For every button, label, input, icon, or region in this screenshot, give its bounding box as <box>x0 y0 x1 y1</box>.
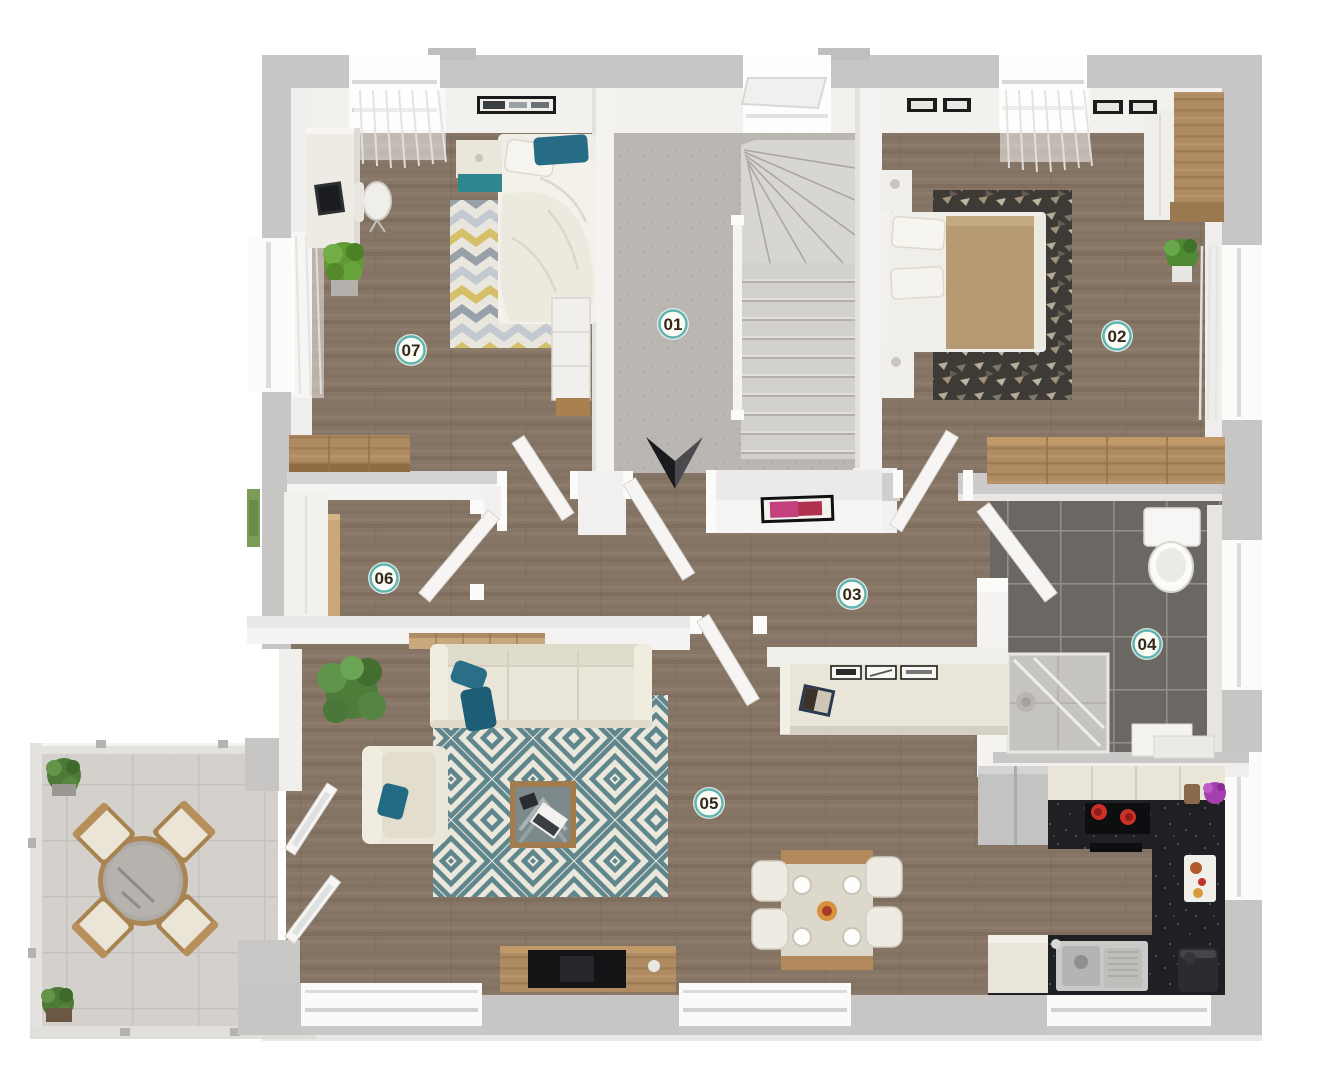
svg-text:04: 04 <box>1138 635 1157 654</box>
svg-text:05: 05 <box>700 794 719 813</box>
svg-text:02: 02 <box>1108 327 1127 346</box>
svg-text:07: 07 <box>402 341 421 360</box>
svg-text:01: 01 <box>664 315 683 334</box>
svg-text:03: 03 <box>843 585 862 604</box>
svg-text:06: 06 <box>375 569 394 588</box>
